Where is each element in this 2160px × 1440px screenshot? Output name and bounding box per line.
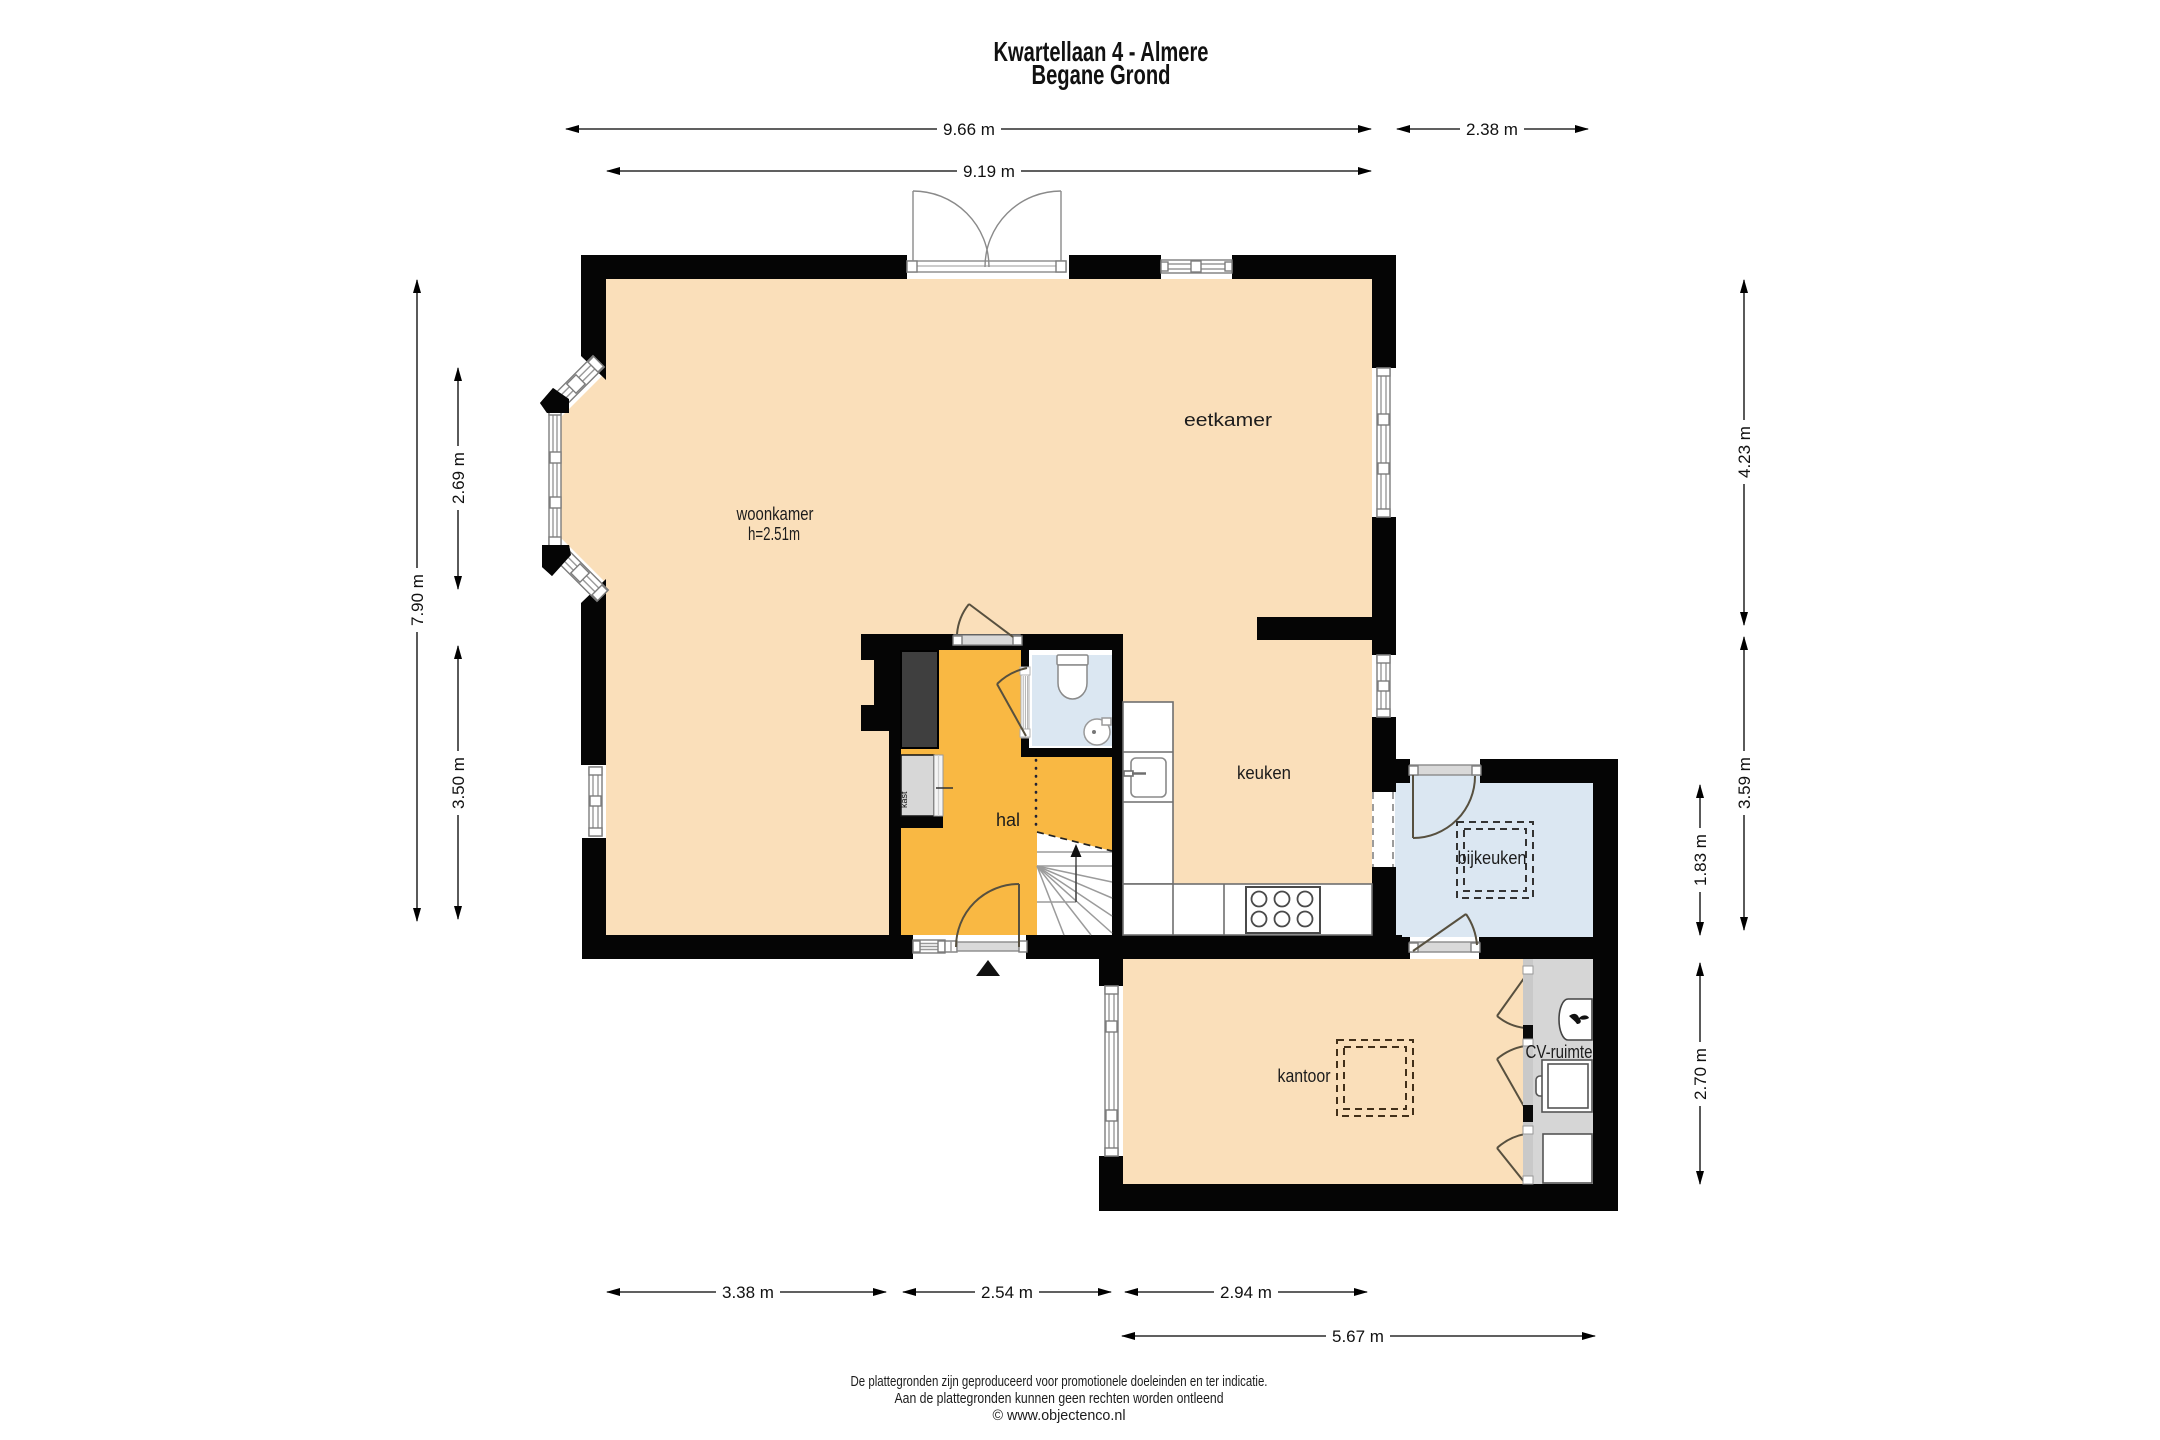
svg-text:9.66 m: 9.66 m [943,120,995,139]
svg-text:© www.objectenco.nl: © www.objectenco.nl [993,1408,1126,1424]
svg-text:3.59 m: 3.59 m [1735,757,1754,809]
svg-text:eetkamer: eetkamer [1184,410,1272,430]
svg-text:Begane Grond: Begane Grond [1032,59,1171,90]
svg-text:Aan de plattegronden kunnen ge: Aan de plattegronden kunnen geen rechten… [895,1391,1224,1407]
svg-text:7.90 m: 7.90 m [408,574,427,626]
svg-text:2.94 m: 2.94 m [1220,1283,1272,1302]
svg-text:9.19 m: 9.19 m [963,162,1015,181]
svg-text:2.69 m: 2.69 m [449,452,468,504]
svg-text:De plattegronden zijn geproduc: De plattegronden zijn geproduceerd voor … [851,1374,1268,1390]
svg-text:kast: kast [899,791,909,808]
svg-text:CV-ruimte: CV-ruimte [1526,1042,1593,1062]
svg-text:2.54 m: 2.54 m [981,1283,1033,1302]
svg-text:5.67 m: 5.67 m [1332,1327,1384,1346]
svg-text:hal: hal [996,810,1020,830]
svg-text:woonkamer: woonkamer [736,504,814,524]
svg-text:bijkeuken: bijkeuken [1458,848,1527,868]
svg-text:2.70 m: 2.70 m [1691,1048,1710,1100]
svg-text:2.38 m: 2.38 m [1466,120,1518,139]
svg-text:4.23 m: 4.23 m [1735,426,1754,478]
svg-text:1.83 m: 1.83 m [1691,834,1710,886]
svg-text:3.38 m: 3.38 m [722,1283,774,1302]
svg-text:3.50 m: 3.50 m [449,757,468,809]
svg-text:kantoor: kantoor [1278,1066,1331,1086]
svg-text:h=2.51m: h=2.51m [748,524,800,544]
svg-text:keuken: keuken [1237,763,1291,783]
